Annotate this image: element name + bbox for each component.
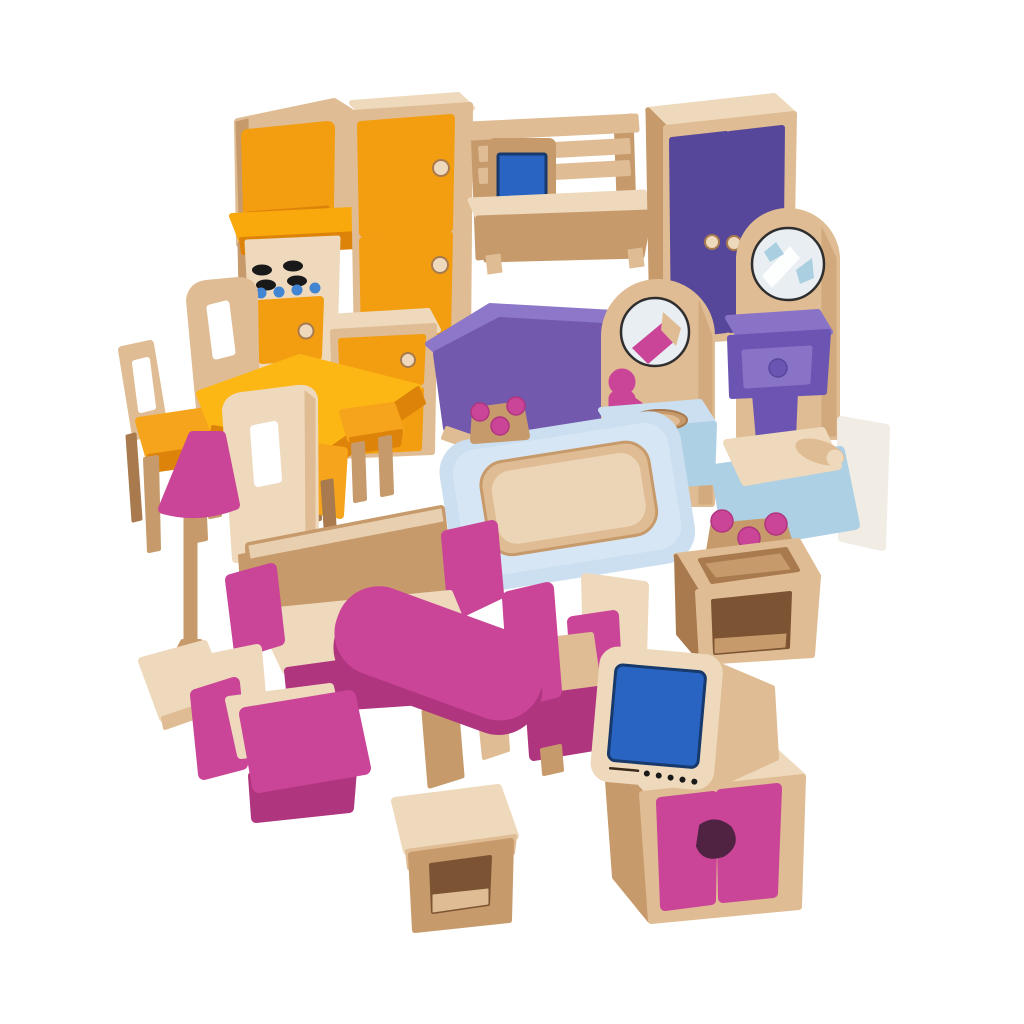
desk-apron — [478, 212, 650, 260]
washstand-tap — [765, 513, 787, 535]
chair-back-slot — [135, 360, 153, 410]
stove-knob-dot — [310, 283, 321, 294]
wardrobe-knob — [705, 235, 719, 249]
desk-top-rail — [470, 116, 637, 138]
toy-side-table-stool — [395, 788, 515, 930]
washstand-tap — [711, 510, 733, 532]
bathtub-tap — [507, 397, 525, 415]
stove-knob-dot — [274, 287, 285, 298]
toy-television — [593, 649, 776, 788]
stool-leg — [380, 437, 392, 495]
bathtub-tap — [471, 403, 489, 421]
chair-leg — [145, 457, 159, 551]
cabinet-knob — [401, 353, 415, 367]
fridge-knob — [433, 160, 449, 176]
stove-microwave — [248, 128, 328, 214]
bathtub-tap — [491, 417, 509, 435]
tv-screen — [608, 664, 706, 767]
stool-leg — [353, 443, 365, 501]
tv-cabinet-handle-cutout — [698, 821, 734, 856]
armchair-arm-near — [246, 697, 364, 786]
fridge-knob — [432, 257, 448, 273]
oven-door-knob — [299, 324, 314, 339]
computer-screen — [498, 154, 546, 198]
stove-knob-dot — [292, 285, 303, 296]
toy-dressing-table — [728, 212, 836, 444]
dollhouse-furniture-photo — [0, 0, 1024, 1024]
high-chair-slot — [210, 304, 232, 356]
burner — [283, 261, 303, 272]
chair-back-slot — [254, 425, 278, 483]
burner — [252, 265, 272, 276]
dressing-drawer-knob — [769, 359, 787, 377]
sofa-arm-left — [231, 569, 279, 652]
toy-desk-with-computer — [470, 116, 652, 274]
